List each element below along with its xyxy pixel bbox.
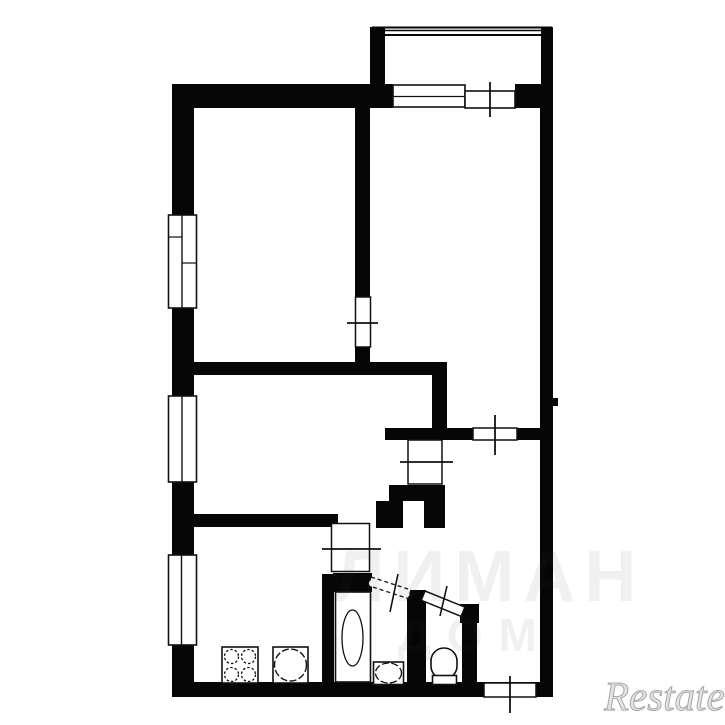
kitchen-sink — [273, 647, 308, 683]
wc-right-wall — [462, 622, 477, 697]
bedroom-door — [356, 297, 371, 347]
duct-block — [389, 485, 445, 501]
bathroom-door-leaf — [368, 577, 411, 599]
right-wall — [540, 84, 553, 682]
floorplan-page: ЛИМАН ДОМ Restate — [0, 0, 725, 725]
corridor-wall — [193, 514, 338, 527]
hall-lower-wall-left — [385, 428, 473, 440]
bathroom-sink — [374, 662, 404, 685]
bedroom-divider-stub — [355, 347, 370, 363]
hall-top-wall — [193, 362, 447, 375]
right-wall-nub — [553, 398, 558, 406]
kitchen-divider-wall — [322, 574, 334, 697]
left-wall-mid1 — [172, 307, 194, 397]
duct-leg-right — [424, 501, 445, 528]
toilet-base — [433, 676, 457, 685]
left-wall-upper — [172, 84, 194, 216]
bathroom-top-wall — [333, 573, 372, 592]
wc-left-wall — [407, 590, 426, 697]
toilet-bowl — [431, 648, 457, 679]
floorplan-drawing — [0, 0, 725, 725]
duct-leg-left — [376, 501, 403, 528]
window-left-3 — [169, 555, 197, 645]
hall-vertical-wall — [432, 375, 447, 428]
hall-lower-wall-right — [517, 428, 553, 440]
bedroom-divider-wall — [355, 108, 370, 297]
stove — [222, 647, 258, 683]
top-wall-left — [172, 84, 393, 108]
left-wall-mid2 — [172, 481, 194, 556]
kitchen-door — [332, 524, 370, 572]
bathtub — [336, 592, 371, 682]
